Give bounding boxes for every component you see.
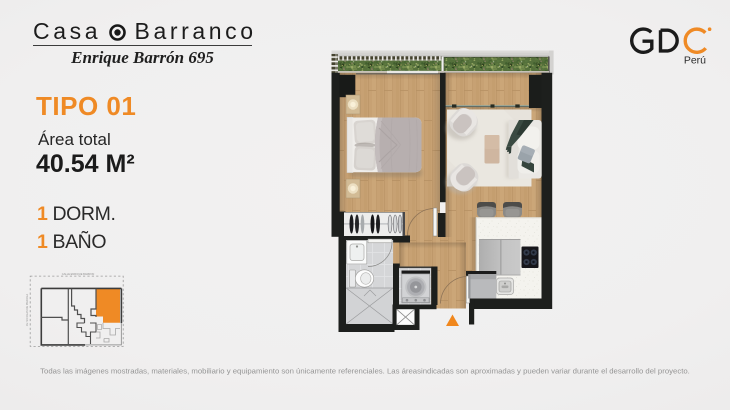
svg-text:CALLE ENRIQUE BARRON: CALLE ENRIQUE BARRON xyxy=(62,272,95,276)
svg-text:AV. NICOLAS DE PIEROLA: AV. NICOLAS DE PIEROLA xyxy=(25,294,29,326)
svg-text:Perú: Perú xyxy=(684,55,706,67)
